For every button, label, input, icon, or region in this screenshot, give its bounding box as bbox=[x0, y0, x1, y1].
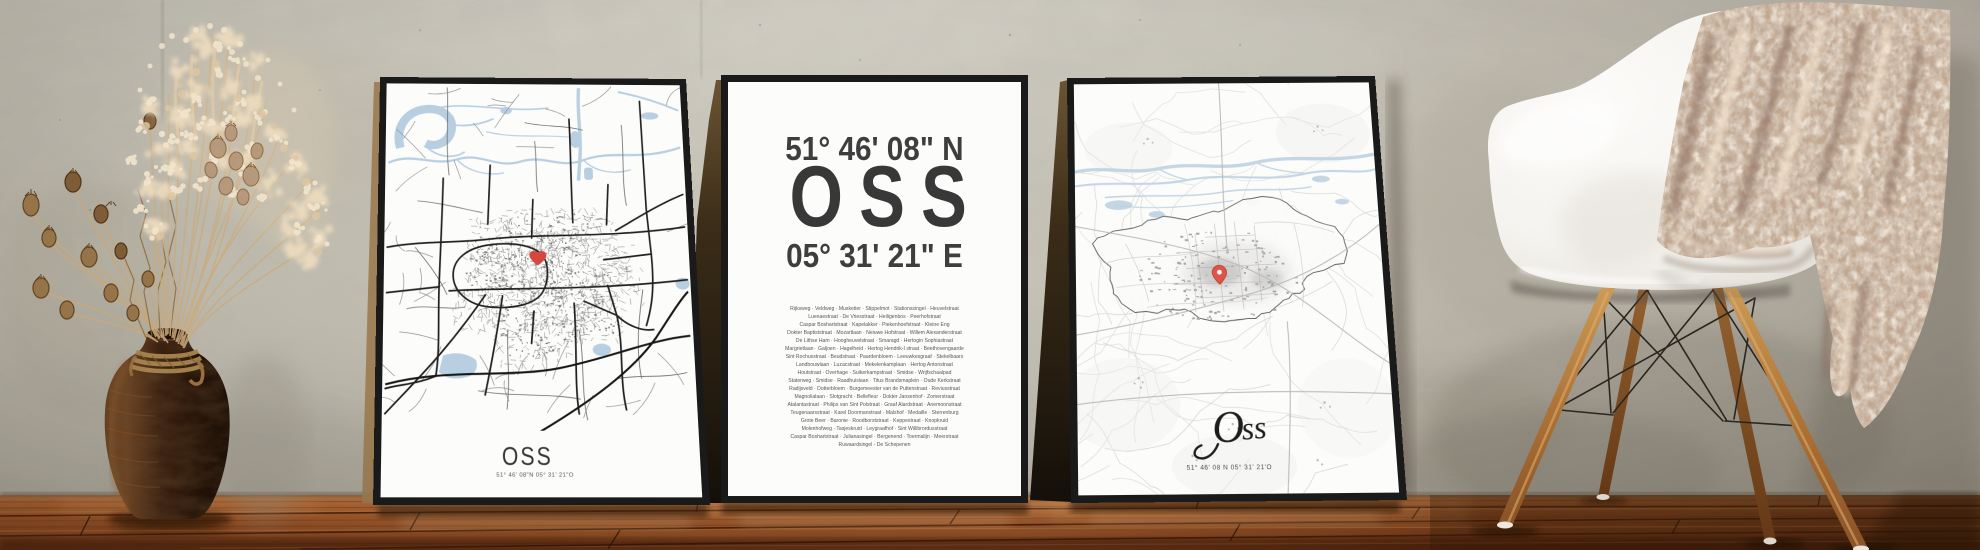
svg-text:ss: ss bbox=[1239, 410, 1268, 447]
svg-text:51° 46' 08 N 05° 31' 21'O: 51° 46' 08 N 05° 31' 21'O bbox=[1187, 465, 1273, 473]
